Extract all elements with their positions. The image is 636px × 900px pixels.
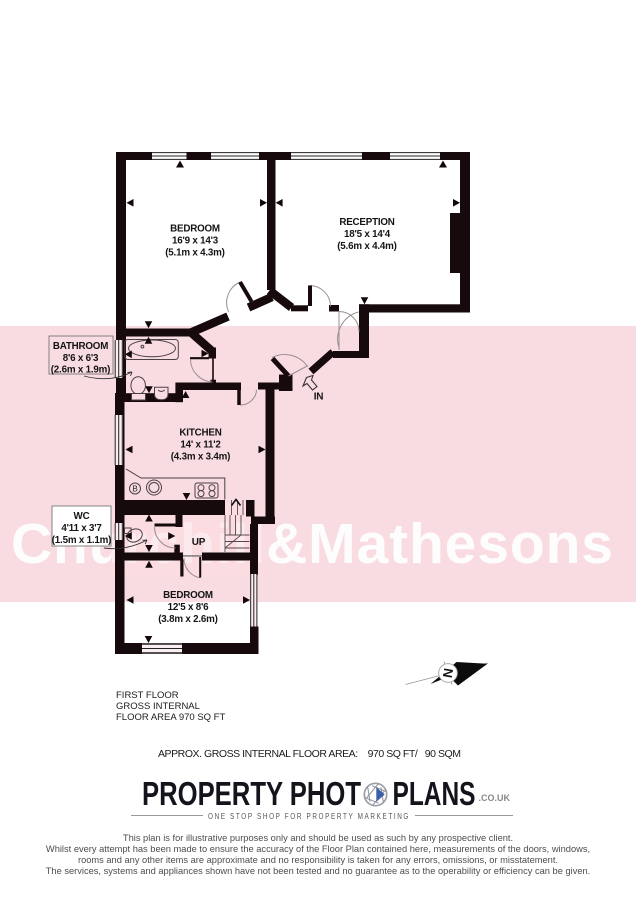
svg-text:(2.6m x 1.9m): (2.6m x 1.9m)	[51, 365, 110, 376]
svg-text:GROSS INTERNAL: GROSS INTERNAL	[116, 701, 200, 712]
svg-text:ONE STOP SHOP FOR PROPERTY MAR: ONE STOP SHOP FOR PROPERTY MARKETING	[208, 812, 410, 821]
svg-text:4'11 x 3'7: 4'11 x 3'7	[61, 523, 102, 534]
svg-text:RECEPTION: RECEPTION	[339, 217, 394, 228]
svg-text:(5.6m x 4.4m): (5.6m x 4.4m)	[337, 241, 396, 252]
svg-text:PROPERTY PHOT: PROPERTY PHOT	[142, 775, 361, 812]
svg-text:rooms and any other items are: rooms and any other items are approximat…	[78, 855, 558, 865]
svg-text:WC: WC	[74, 511, 90, 522]
svg-text:BATHROOM: BATHROOM	[53, 341, 108, 352]
svg-text:BEDROOM: BEDROOM	[170, 224, 220, 235]
svg-text:Whilst every attempt has been: Whilst every attempt has been made to en…	[46, 844, 590, 854]
svg-text:FIRST FLOOR: FIRST FLOOR	[116, 690, 179, 701]
svg-text:14' x 11'2: 14' x 11'2	[180, 440, 221, 451]
svg-text:BEDROOM: BEDROOM	[163, 590, 213, 601]
svg-text:APPROX. GROSS INTERNAL FLOOR A: APPROX. GROSS INTERNAL FLOOR AREA: 970 S…	[158, 748, 461, 760]
svg-text:8'6 x 6'3: 8'6 x 6'3	[63, 353, 99, 364]
svg-text:(5.1m x 4.3m): (5.1m x 4.3m)	[165, 248, 224, 259]
svg-text:16'9 x 14'3: 16'9 x 14'3	[172, 236, 219, 247]
svg-text:.CO.UK: .CO.UK	[479, 793, 511, 803]
svg-text:12'5 x 8'6: 12'5 x 8'6	[168, 602, 210, 613]
svg-text:The services, systems and appl: The services, systems and appliances sho…	[46, 866, 591, 876]
svg-text:(4.3m x 3.4m): (4.3m x 3.4m)	[171, 452, 230, 463]
svg-text:FLOOR AREA 970 SQ FT: FLOOR AREA 970 SQ FT	[116, 712, 225, 723]
svg-text:B: B	[132, 485, 137, 494]
svg-text:PLANS: PLANS	[393, 775, 476, 812]
svg-text:18'5 x 14'4: 18'5 x 14'4	[344, 229, 391, 240]
svg-text:IN: IN	[314, 392, 324, 403]
svg-text:This plan is for illustrative: This plan is for illustrative purposes o…	[123, 833, 513, 843]
svg-text:(1.5m x 1.1m): (1.5m x 1.1m)	[52, 535, 111, 546]
svg-text:(3.8m x 2.6m): (3.8m x 2.6m)	[158, 614, 217, 625]
svg-text:UP: UP	[192, 537, 206, 548]
svg-text:KITCHEN: KITCHEN	[179, 428, 221, 439]
